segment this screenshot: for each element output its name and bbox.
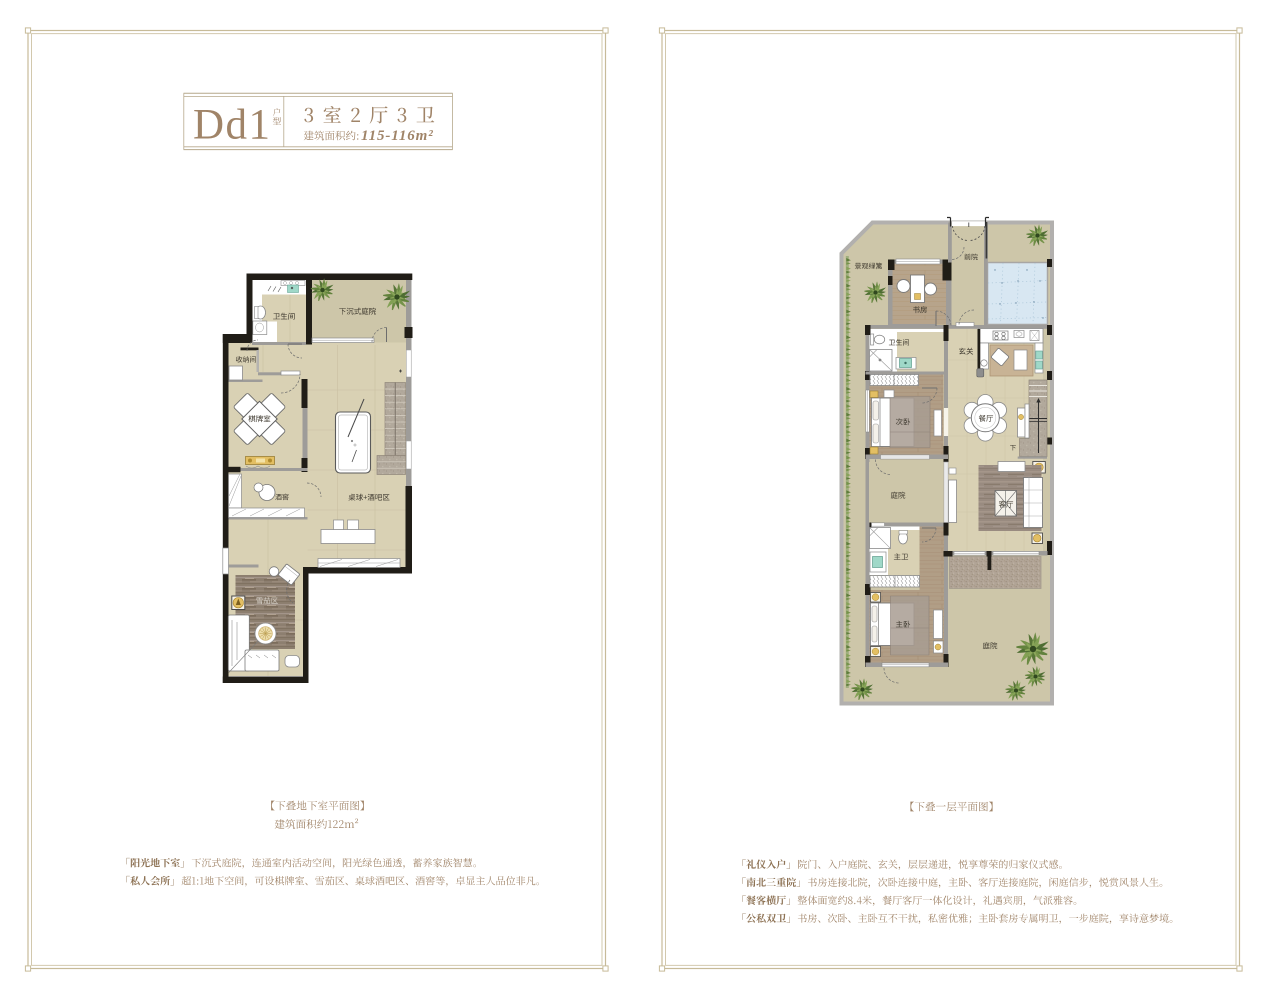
svg-text:Dd1: Dd1 xyxy=(193,102,272,149)
svg-text:115-116m²: 115-116m² xyxy=(361,128,434,144)
